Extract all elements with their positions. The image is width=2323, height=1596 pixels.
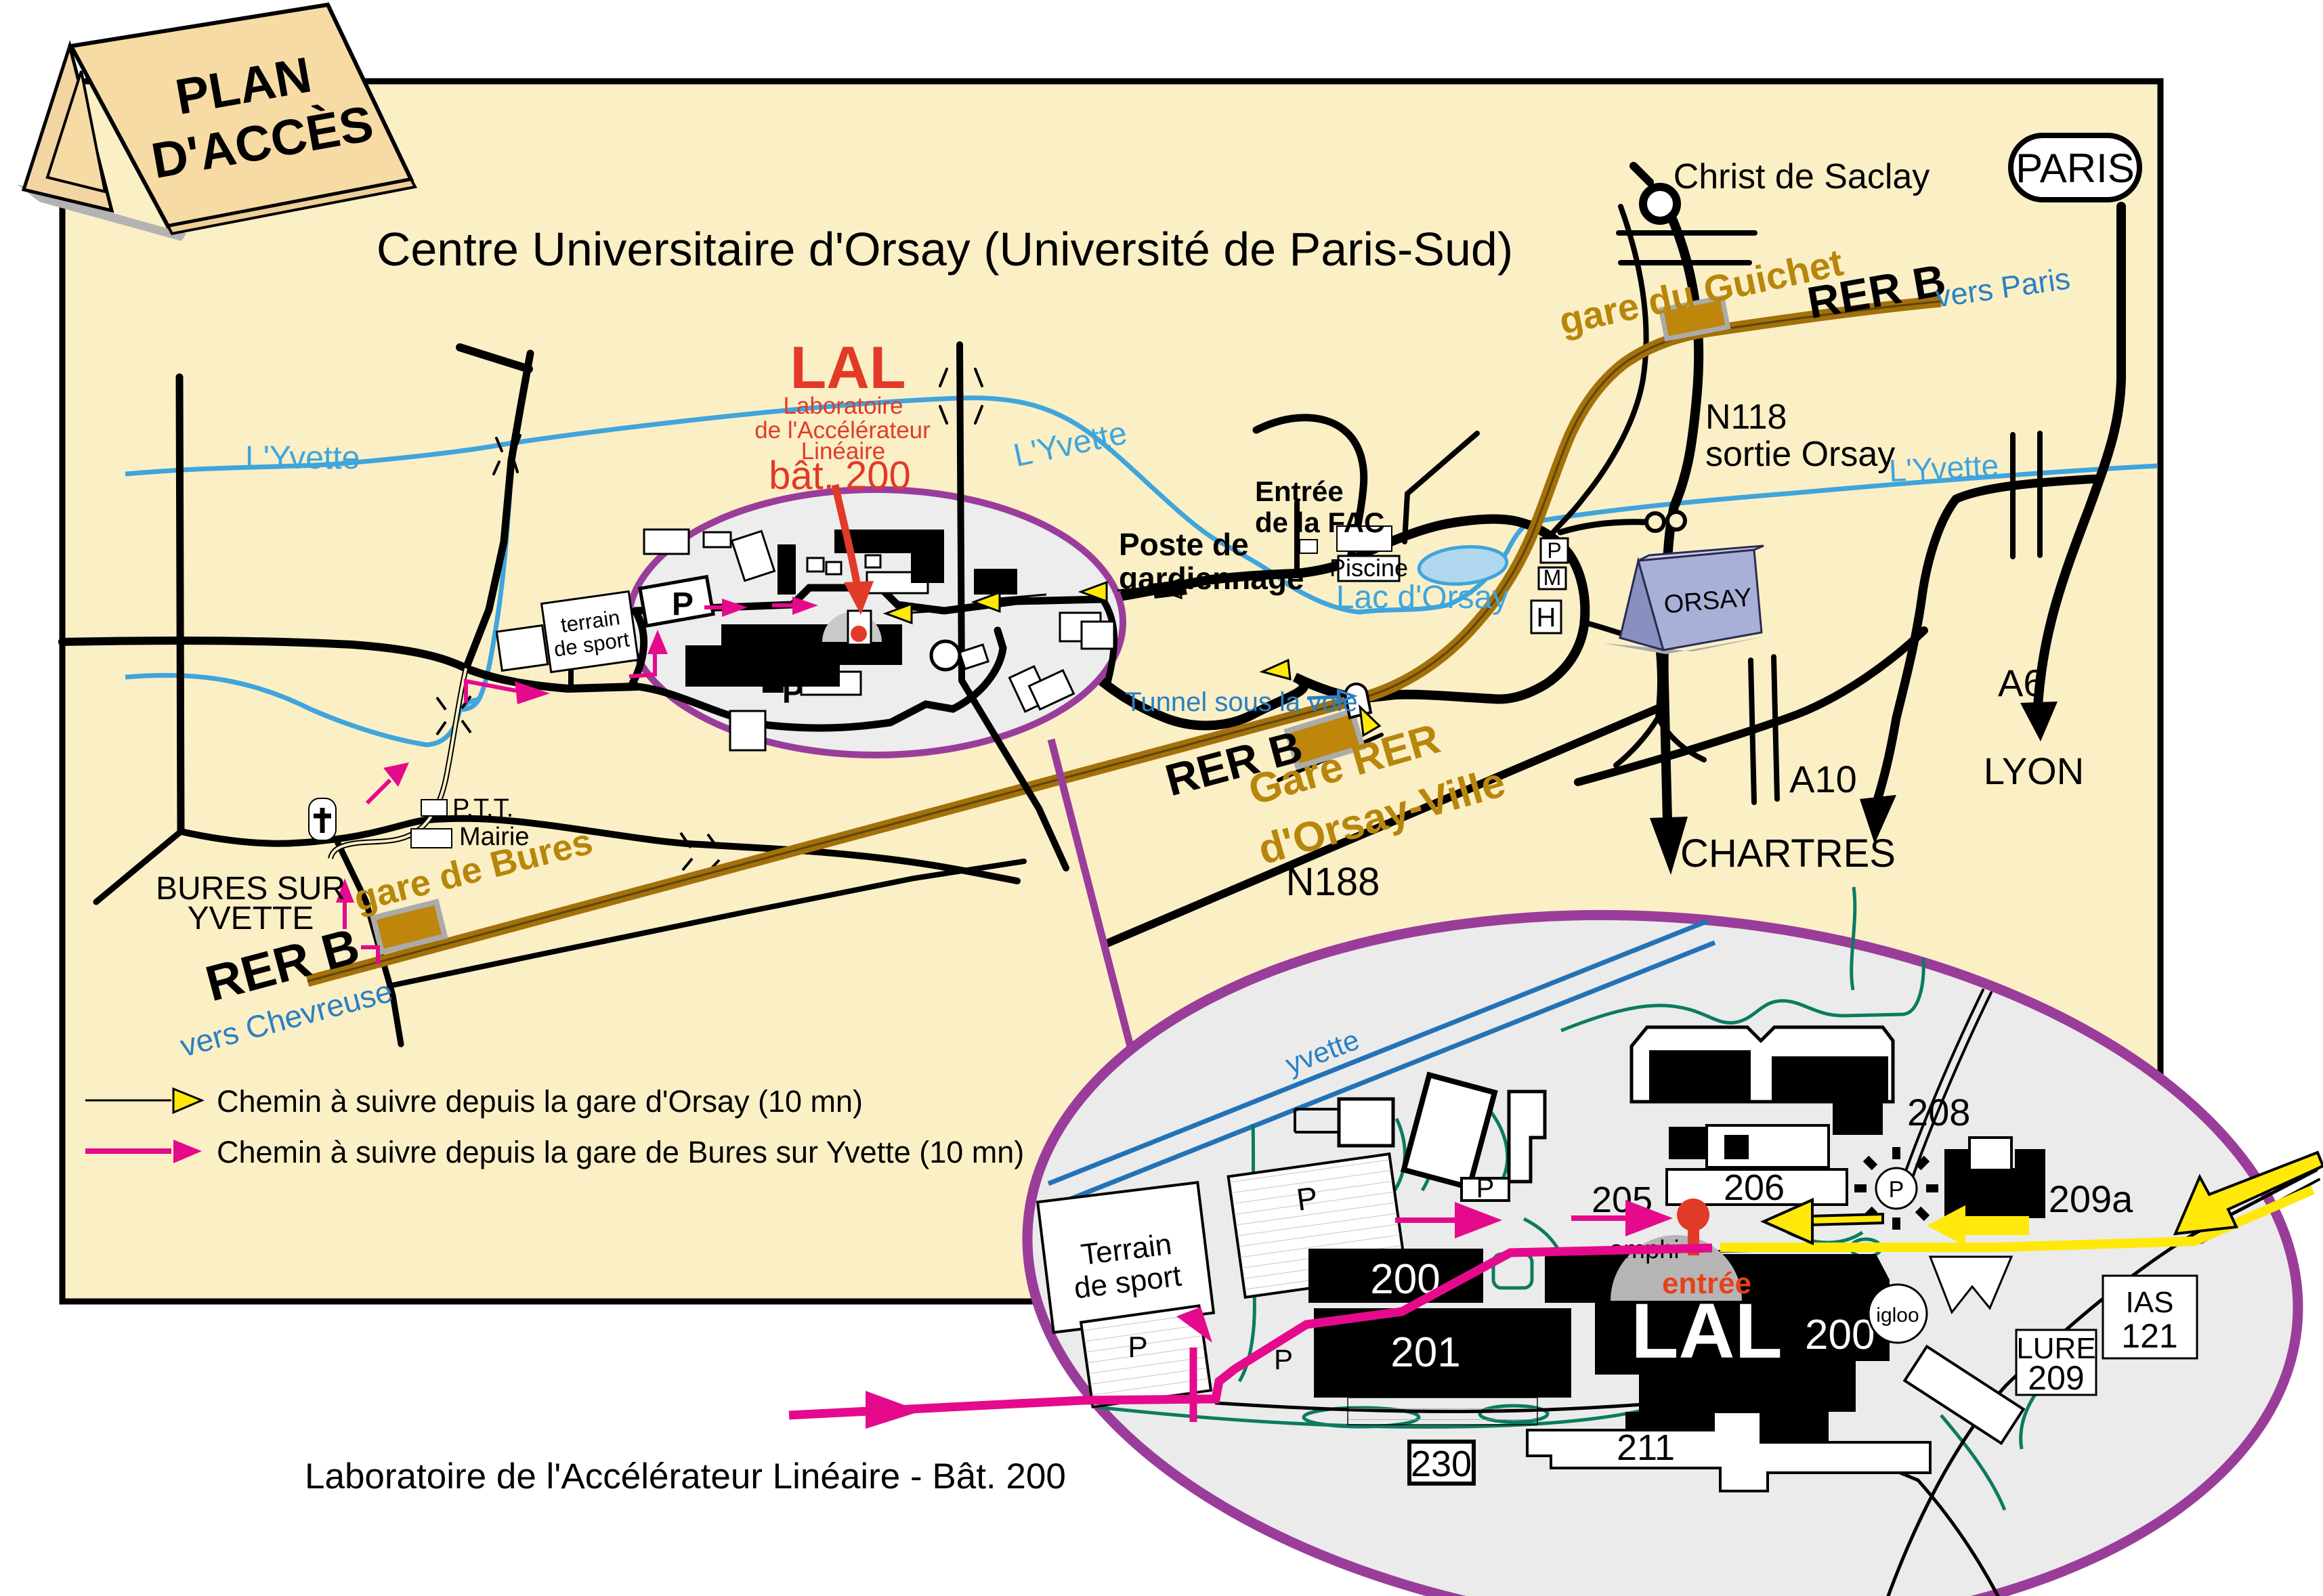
svg-text:M: M <box>1543 565 1562 590</box>
svg-text:P: P <box>782 674 803 710</box>
svg-text:Lac d'Orsay: Lac d'Orsay <box>1336 580 1509 616</box>
svg-text:PARIS: PARIS <box>2016 146 2135 191</box>
svg-text:N188: N188 <box>1286 860 1380 904</box>
svg-text:121: 121 <box>2121 1317 2177 1355</box>
svg-text:201: 201 <box>1390 1329 1460 1376</box>
svg-text:A6: A6 <box>1998 662 2045 704</box>
svg-text:N118: N118 <box>1705 397 1787 437</box>
svg-text:Chemin à suivre depuis la gare: Chemin à suivre depuis la gare d'Orsay (… <box>217 1084 863 1119</box>
svg-text:YVETTE: YVETTE <box>188 901 314 936</box>
svg-text:Chemin à suivre depuis la gare: Chemin à suivre depuis la gare de Bures … <box>217 1135 1024 1169</box>
svg-text:P: P <box>1128 1331 1147 1364</box>
svg-text:LAL: LAL <box>1631 1288 1783 1375</box>
svg-text:LAL: LAL <box>790 334 905 401</box>
svg-text:H: H <box>1537 603 1556 632</box>
svg-text:bât. 200: bât. 200 <box>769 454 911 498</box>
svg-text:209: 209 <box>2028 1359 2084 1397</box>
svg-text:Mairie: Mairie <box>459 823 529 851</box>
svg-text:Laboratoire: Laboratoire <box>783 393 903 419</box>
svg-text:230: 230 <box>1411 1444 1472 1484</box>
svg-text:P: P <box>1274 1343 1293 1375</box>
svg-text:P: P <box>672 586 694 622</box>
svg-text:P: P <box>1476 1173 1495 1203</box>
svg-text:L'Yvette: L'Yvette <box>245 440 360 476</box>
svg-text:gardiennage: gardiennage <box>1119 561 1304 596</box>
svg-text:L'Yvette: L'Yvette <box>1888 448 2000 488</box>
svg-text:IAS: IAS <box>2126 1286 2174 1319</box>
svg-text:Centre Universitaire d'Orsay (: Centre Universitaire d'Orsay (Université… <box>377 223 1513 276</box>
svg-text:Christ de Saclay: Christ de Saclay <box>1674 157 1930 196</box>
svg-text:sortie Orsay: sortie Orsay <box>1705 435 1895 474</box>
svg-text:LYON: LYON <box>1984 750 2084 792</box>
svg-text:Entrée: Entrée <box>1255 475 1344 507</box>
svg-text:209a: 209a <box>2049 1178 2133 1220</box>
svg-text:206: 206 <box>1724 1167 1785 1208</box>
svg-text:P: P <box>1889 1177 1904 1203</box>
svg-text:200: 200 <box>1805 1312 1875 1358</box>
svg-text:entrée: entrée <box>1662 1267 1751 1300</box>
svg-text:211: 211 <box>1617 1427 1675 1468</box>
svg-text:de la FAC: de la FAC <box>1255 506 1384 538</box>
svg-text:Laboratoire de l'Accélérateur: Laboratoire de l'Accélérateur Linéaire -… <box>305 1457 1066 1496</box>
svg-text:Piscine: Piscine <box>1329 554 1408 582</box>
svg-text:P.T.T.: P.T.T. <box>452 794 513 823</box>
svg-text:208: 208 <box>1907 1091 1970 1134</box>
svg-text:igloo: igloo <box>1876 1304 1919 1327</box>
svg-text:CHARTRES: CHARTRES <box>1680 832 1896 876</box>
svg-text:Poste de: Poste de <box>1119 527 1249 562</box>
svg-text:Tunnel sous la voie: Tunnel sous la voie <box>1125 687 1357 717</box>
svg-text:P: P <box>1547 538 1561 563</box>
svg-text:A10: A10 <box>1789 758 1857 800</box>
